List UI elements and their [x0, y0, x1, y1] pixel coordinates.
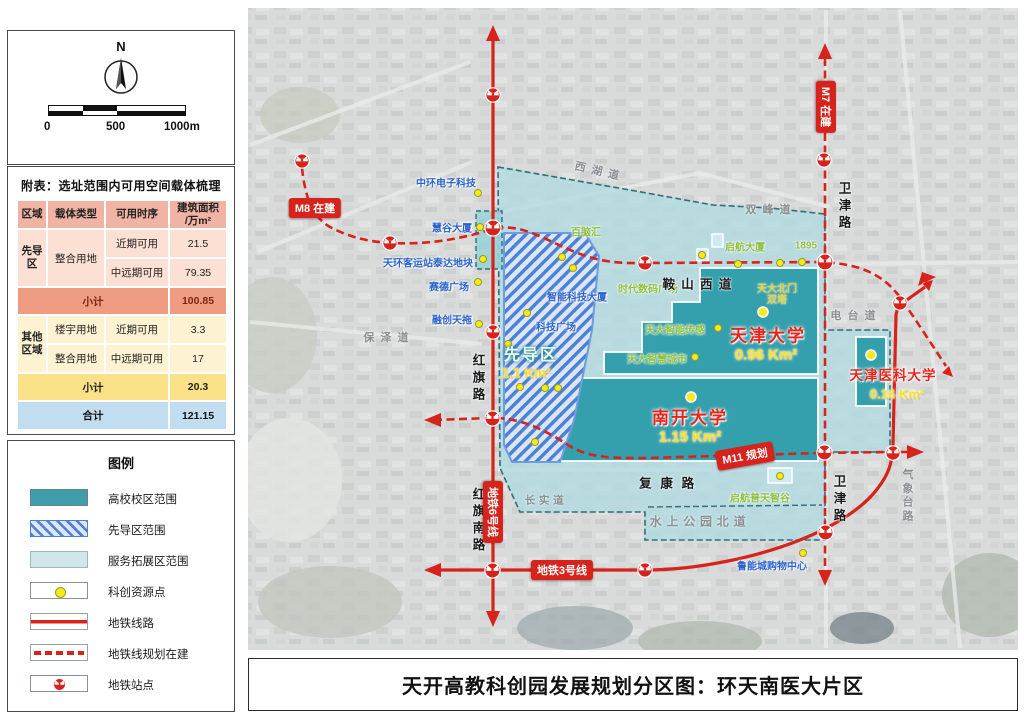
col-header-carrier: 载体类型	[47, 200, 105, 229]
service-swatch	[30, 551, 88, 568]
pilot-swatch	[30, 520, 88, 537]
subtotal2-value: 20.3	[169, 373, 227, 401]
north-label: N	[8, 39, 234, 54]
col-header-area: 建筑面积 /万m²	[169, 200, 227, 229]
subtotal1-value: 100.85	[169, 287, 227, 315]
subtotal2-label: 小计	[17, 373, 169, 401]
zone2-cell: 其他区域	[17, 315, 47, 373]
legend-title: 图例	[8, 453, 234, 472]
metro-line-swatch	[30, 613, 88, 630]
legend-item-metro-planned: 地铁线规划在建	[30, 644, 230, 664]
scale-tick-500: 500	[106, 121, 125, 133]
total-value: 121.15	[169, 401, 227, 430]
scale-tick-0: 0	[44, 121, 50, 133]
map-title: 天开高教科创园发展规划分区图：环天南医大片区	[402, 670, 864, 699]
legend-item-metro-station: 地铁站点	[30, 675, 230, 695]
col-header-timing: 可用时序	[105, 200, 169, 229]
r1-timing: 近期可用	[105, 229, 169, 258]
compass-scale-panel: N 0 500 1000m	[7, 30, 235, 165]
r1-value: 21.5	[169, 229, 227, 258]
legend-item-campus: 高校校区范围	[30, 489, 230, 509]
table-title: 附表：选址范围内可用空间载体梳理	[8, 177, 234, 194]
r3-carrier: 楼宇用地	[47, 315, 105, 344]
map-canvas	[248, 8, 1018, 650]
zone1-cell: 先导区	[17, 229, 47, 287]
compass-icon	[101, 55, 141, 99]
r3-timing: 近期可用	[105, 315, 169, 344]
legend-item-resource: 科创资源点	[30, 582, 230, 602]
metro-station-icon	[30, 675, 88, 692]
medical-university-area	[856, 337, 886, 406]
page: 中环电子科技 慧谷大厦 天环客运站泰达地块 赛德广场 融创天拖 智能科技大厦 科…	[0, 0, 1024, 717]
resource-dot-icon	[30, 582, 88, 599]
r3-value: 3.3	[169, 315, 227, 344]
subtotal1-label: 小计	[17, 287, 169, 315]
scale-bar	[48, 105, 186, 116]
r2-value: 79.35	[169, 258, 227, 287]
legend-item-service: 服务拓展区范围	[30, 551, 230, 571]
col-header-zone: 区域	[17, 200, 47, 229]
legend-panel: 图例 高校校区范围 先导区范围 服务拓展区范围 科创资源点 地铁线路 地铁线规划…	[7, 440, 235, 712]
r4-carrier: 整合用地	[47, 344, 105, 373]
scale-tick-1000: 1000m	[164, 121, 200, 133]
r4-timing: 中远期可用	[105, 344, 169, 373]
carrier-table: 区域 载体类型 可用时序 建筑面积 /万m² 先导区 整合用地 近期可用 21.…	[16, 199, 228, 431]
metro-dashed-swatch	[30, 644, 88, 661]
zone1-carrier-cell: 整合用地	[47, 229, 105, 287]
nankai-university-area	[561, 378, 818, 461]
carrier-table-panel: 附表：选址范围内可用空间载体梳理 区域 载体类型 可用时序 建筑面积 /万m² …	[7, 166, 235, 435]
campus-swatch	[30, 489, 88, 506]
footer-title-bar: 天开高教科创园发展规划分区图：环天南医大片区	[248, 658, 1018, 711]
legend-item-pilot: 先导区范围	[30, 520, 230, 540]
total-label: 合计	[17, 401, 169, 430]
r2-timing: 中远期可用	[105, 258, 169, 287]
legend-item-metro-line: 地铁线路	[30, 613, 230, 633]
r4-value: 17	[169, 344, 227, 373]
